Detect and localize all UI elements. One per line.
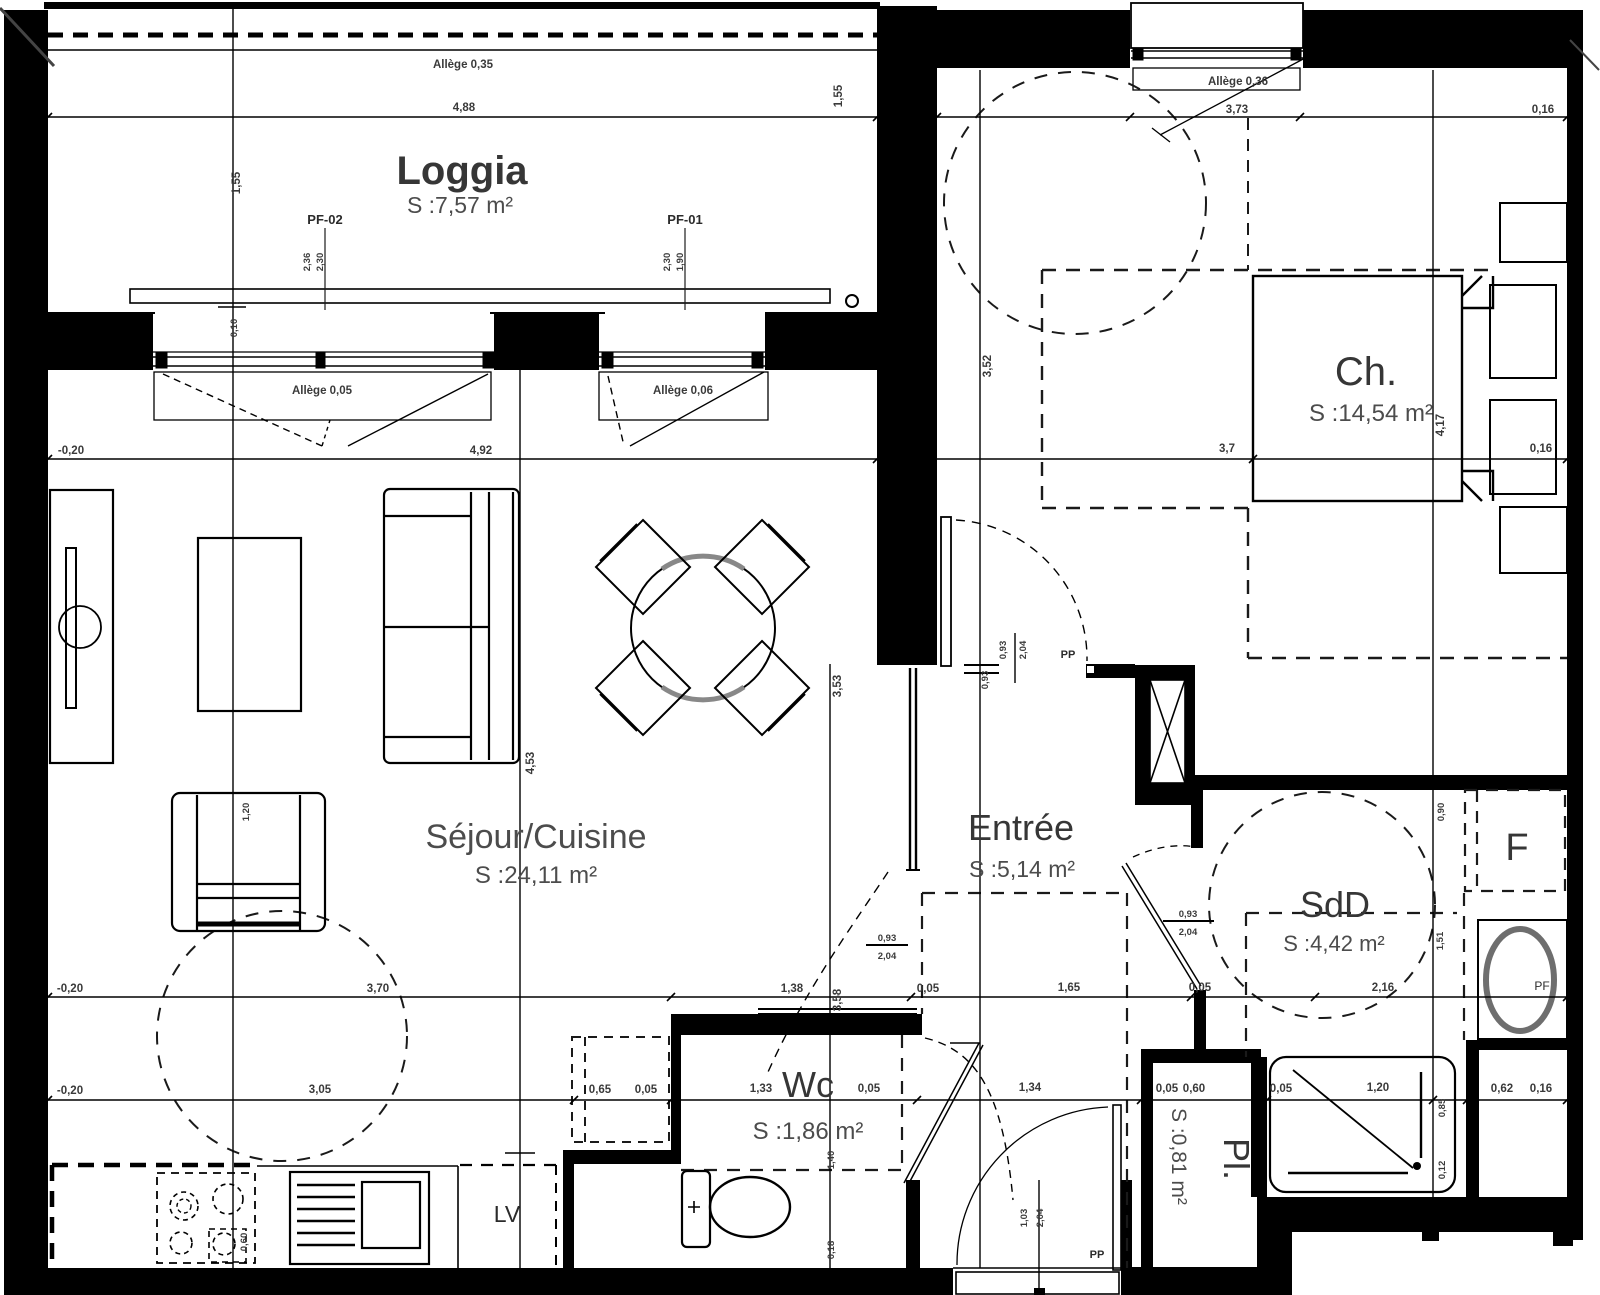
svg-text:3,7: 3,7 <box>1219 443 1235 455</box>
svg-text:2,30: 2,30 <box>315 253 326 272</box>
svg-text:1,65: 1,65 <box>1058 982 1081 994</box>
svg-text:PF-02: PF-02 <box>307 212 342 227</box>
svg-text:Allège 0,35: Allège 0,35 <box>433 59 494 71</box>
svg-text:2,04: 2,04 <box>1035 1208 1046 1227</box>
svg-text:0,10: 0,10 <box>229 319 240 338</box>
svg-text:Allège 0,36: Allège 0,36 <box>1208 76 1268 88</box>
svg-text:-0,20: -0,20 <box>57 983 83 995</box>
svg-text:SdD: SdD <box>1300 884 1370 925</box>
svg-text:0,12: 0,12 <box>1437 1161 1448 1180</box>
svg-text:S :1,86 m²: S :1,86 m² <box>753 1118 864 1145</box>
svg-text:1,20: 1,20 <box>241 803 252 822</box>
svg-text:0,05: 0,05 <box>858 1083 881 1095</box>
svg-text:3,58: 3,58 <box>832 988 844 1011</box>
svg-text:0,16: 0,16 <box>1530 1083 1552 1095</box>
svg-text:1,38: 1,38 <box>781 983 804 995</box>
svg-text:0,05: 0,05 <box>917 983 940 995</box>
svg-text:Allège 0,06: Allège 0,06 <box>653 385 713 397</box>
svg-text:-0,20: -0,20 <box>58 445 84 457</box>
svg-text:0,93: 0,93 <box>980 671 991 690</box>
svg-text:2,04: 2,04 <box>1018 640 1029 659</box>
svg-text:S :7,57 m²: S :7,57 m² <box>407 192 513 218</box>
svg-text:1,03: 1,03 <box>1019 1209 1030 1228</box>
svg-text:0,93: 0,93 <box>998 641 1009 660</box>
svg-text:0,05: 0,05 <box>1156 1083 1179 1095</box>
svg-text:0,93: 0,93 <box>878 933 897 944</box>
svg-text:3,05: 3,05 <box>309 1084 332 1096</box>
svg-text:S :24,11 m²: S :24,11 m² <box>475 862 597 889</box>
svg-text:LV: LV <box>494 1201 521 1227</box>
svg-text:0,05: 0,05 <box>1270 1083 1293 1095</box>
svg-text:3,52: 3,52 <box>982 355 994 377</box>
svg-text:0,93: 0,93 <box>1179 909 1198 920</box>
svg-text:S :4,42 m²: S :4,42 m² <box>1283 931 1384 956</box>
svg-text:1,90: 1,90 <box>675 253 686 272</box>
svg-text:S :5,14 m²: S :5,14 m² <box>969 856 1075 882</box>
svg-text:2,30: 2,30 <box>662 253 673 272</box>
svg-text:4,53: 4,53 <box>525 752 537 774</box>
svg-text:4,92: 4,92 <box>470 445 492 457</box>
svg-text:2,36: 2,36 <box>302 253 313 272</box>
svg-text:1,51: 1,51 <box>1435 931 1446 950</box>
svg-text:3,73: 3,73 <box>1226 104 1248 116</box>
svg-text:Séjour/Cuisine: Séjour/Cuisine <box>425 818 646 856</box>
svg-text:0,60: 0,60 <box>239 1233 250 1252</box>
svg-text:0,16: 0,16 <box>1532 104 1554 116</box>
svg-text:0,16: 0,16 <box>1530 443 1552 455</box>
svg-text:PP: PP <box>1090 1249 1105 1261</box>
svg-text:F: F <box>1505 827 1528 869</box>
svg-text:2,04: 2,04 <box>878 951 897 962</box>
svg-text:1,40: 1,40 <box>826 1151 837 1170</box>
svg-text:0,65: 0,65 <box>589 1084 612 1096</box>
svg-text:0,62: 0,62 <box>1491 1083 1513 1095</box>
svg-text:4,88: 4,88 <box>453 102 476 114</box>
svg-text:PF: PF <box>1534 979 1549 993</box>
svg-text:-0,20: -0,20 <box>57 1085 83 1097</box>
svg-text:0,05: 0,05 <box>635 1084 658 1096</box>
svg-text:2,04: 2,04 <box>1179 927 1198 938</box>
svg-text:0,90: 0,90 <box>1436 803 1447 822</box>
svg-text:1,20: 1,20 <box>1367 1082 1389 1094</box>
svg-text:0,85: 0,85 <box>1437 1098 1448 1117</box>
svg-text:S :14,54 m²: S :14,54 m² <box>1309 400 1433 427</box>
svg-text:Loggia: Loggia <box>396 149 528 193</box>
svg-text:1,33: 1,33 <box>750 1083 772 1095</box>
svg-text:3,70: 3,70 <box>367 983 389 995</box>
svg-text:0,18: 0,18 <box>826 1241 837 1260</box>
svg-text:PF-01: PF-01 <box>667 212 702 227</box>
svg-text:Wc: Wc <box>782 1064 834 1105</box>
svg-text:4,17: 4,17 <box>1435 414 1447 436</box>
svg-text:Ch.: Ch. <box>1335 350 1397 394</box>
svg-text:1,34: 1,34 <box>1019 1082 1042 1094</box>
svg-text:3,53: 3,53 <box>832 675 844 697</box>
svg-text:Pl.: Pl. <box>1216 1138 1257 1180</box>
svg-text:S :0,81 m²: S :0,81 m² <box>1167 1108 1190 1205</box>
svg-text:1,55: 1,55 <box>833 84 845 107</box>
svg-text:Allège 0,05: Allège 0,05 <box>292 385 353 397</box>
svg-text:0,05: 0,05 <box>1189 982 1212 994</box>
svg-text:1,55: 1,55 <box>231 171 243 194</box>
svg-text:0,60: 0,60 <box>1183 1083 1205 1095</box>
svg-text:2,16: 2,16 <box>1372 982 1394 994</box>
svg-text:PP: PP <box>1061 649 1076 661</box>
svg-text:Entrée: Entrée <box>968 807 1074 848</box>
